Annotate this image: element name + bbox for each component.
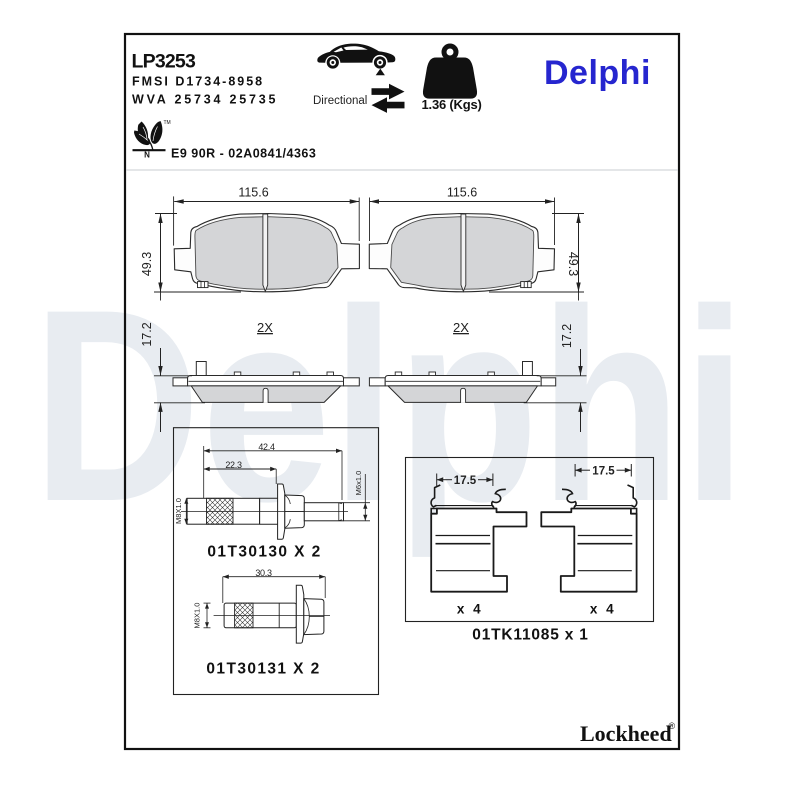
svg-text:49.3: 49.3 xyxy=(566,252,580,276)
svg-text:x 4: x 4 xyxy=(457,602,483,617)
svg-text:115.6: 115.6 xyxy=(238,186,268,200)
svg-text:2X: 2X xyxy=(257,320,273,335)
svg-text:M6x1.0: M6x1.0 xyxy=(354,471,363,496)
svg-text:1.36 (Kgs): 1.36 (Kgs) xyxy=(422,97,482,112)
svg-text:01TK11085 x 1: 01TK11085 x 1 xyxy=(472,627,588,644)
svg-text:01T30130 X 2: 01T30130 X 2 xyxy=(207,544,321,561)
svg-text:LP3253: LP3253 xyxy=(132,51,196,73)
svg-text:®: ® xyxy=(669,721,676,731)
svg-text:TM: TM xyxy=(164,120,171,126)
svg-text:01T30131 X 2: 01T30131 X 2 xyxy=(206,661,320,678)
svg-text:M8X1.0: M8X1.0 xyxy=(174,498,183,524)
svg-text:WVA 25734 25735: WVA 25734 25735 xyxy=(132,93,278,107)
svg-text:2X: 2X xyxy=(453,320,469,335)
svg-text:17.5: 17.5 xyxy=(454,475,477,487)
svg-text:Delphi: Delphi xyxy=(544,54,651,92)
svg-text:17.5: 17.5 xyxy=(592,466,615,478)
svg-text:115.6: 115.6 xyxy=(447,186,477,200)
svg-text:Delphi: Delphi xyxy=(32,252,747,558)
svg-text:x 4: x 4 xyxy=(590,602,616,617)
svg-text:E9 90R - 02A0841/4363: E9 90R - 02A0841/4363 xyxy=(171,147,316,161)
svg-text:M8X1.0: M8X1.0 xyxy=(193,603,202,629)
svg-text:FMSI D1734-8958: FMSI D1734-8958 xyxy=(132,75,264,89)
svg-text:17.2: 17.2 xyxy=(560,324,574,348)
svg-text:Directional: Directional xyxy=(313,95,367,107)
svg-text:17.2: 17.2 xyxy=(140,322,154,346)
svg-text:Lockheed: Lockheed xyxy=(580,721,672,746)
svg-text:N: N xyxy=(144,151,150,160)
svg-text:49.3: 49.3 xyxy=(140,252,154,276)
